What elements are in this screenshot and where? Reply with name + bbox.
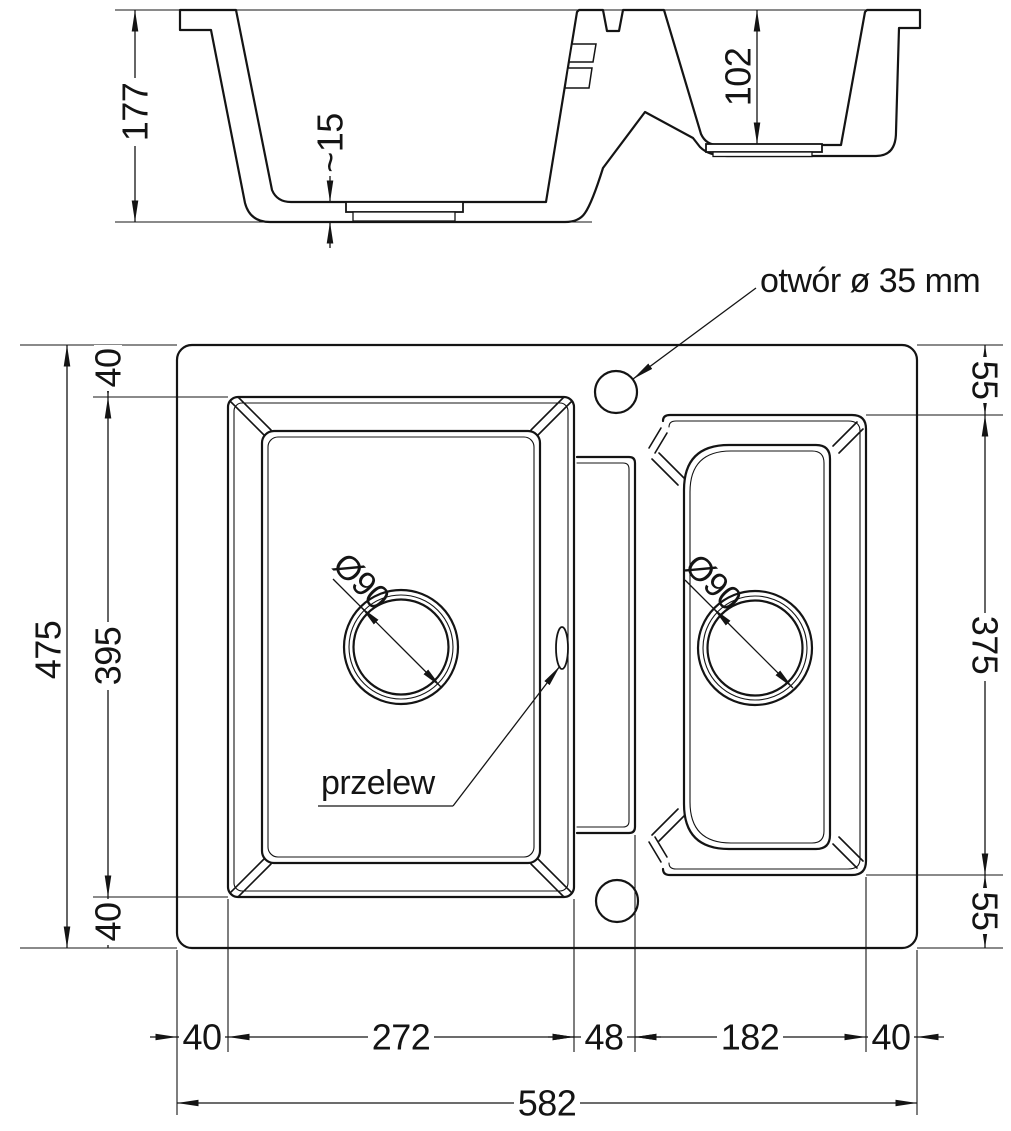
small-bowl-opening — [684, 445, 830, 849]
dim-bowl-opening-height: 395 — [88, 397, 129, 897]
dim-text-177: 177 — [115, 83, 156, 142]
sink-technical-drawing-page: 177 ~15 102 — [0, 0, 1011, 1131]
dim-text-40-right: 40 — [871, 1017, 910, 1058]
section-body-hatched — [180, 10, 920, 222]
dim-text-475: 475 — [28, 621, 69, 680]
dim-margin-left: 40 — [150, 1017, 228, 1058]
dim-text-drain-left: Ø90 — [325, 546, 396, 617]
dim-main-bowl-width: 272 — [228, 1017, 574, 1058]
tap-hole-top — [595, 371, 637, 413]
divider-steps — [577, 457, 635, 833]
dim-text-40-left: 40 — [182, 1017, 221, 1058]
dim-text-102: 102 — [718, 48, 759, 107]
dim-overall-width: 582 — [177, 1083, 917, 1124]
dim-text-182: 182 — [721, 1017, 780, 1058]
dim-text-272: 272 — [372, 1017, 431, 1058]
cross-section-view: 177 ~15 102 — [115, 10, 921, 248]
small-bowl — [649, 415, 866, 875]
small-bowl-drain-recess — [713, 152, 812, 157]
dim-right-offset-bottom: 55 — [965, 875, 1006, 948]
dim-text-375: 375 — [965, 616, 1006, 675]
dim-section-depth: 177 — [115, 10, 156, 222]
dim-text-48: 48 — [584, 1017, 623, 1058]
dim-text-582: 582 — [518, 1083, 577, 1124]
main-bowl-drain-plate — [346, 202, 463, 212]
dim-text-15: ~15 — [310, 113, 351, 173]
dim-text-395: 395 — [88, 627, 129, 686]
dim-small-bowl-depth: 102 — [718, 10, 759, 144]
overflow-slot — [556, 627, 568, 669]
dim-small-bowl-width: 182 — [635, 1017, 866, 1058]
dim-text-40-bottom-left: 40 — [88, 902, 129, 941]
dim-overall-height: 475 — [28, 345, 69, 948]
dim-text-55-top-right: 55 — [965, 360, 1006, 399]
dim-text-55-bottom-right: 55 — [965, 891, 1006, 930]
dim-margin-right: 40 — [866, 1017, 944, 1058]
dim-small-drain-diameter: Ø90 — [677, 547, 793, 688]
tap-hole-note: otwór ø 35 mm — [633, 262, 980, 379]
dim-text-drain-right: Ø90 — [677, 547, 748, 618]
small-bowl-opening-inner-line — [690, 451, 824, 843]
sink-technical-drawing: 177 ~15 102 — [0, 0, 1011, 1131]
small-bowl-rim-outer — [663, 415, 866, 875]
dim-text-40-top-left: 40 — [88, 348, 129, 387]
overflow-note: przelew — [318, 666, 560, 806]
dim-left-offset-bottom: 40 — [88, 897, 129, 948]
small-bowl-drain-plate — [706, 144, 822, 152]
dim-right-offset-top: 55 — [965, 345, 1006, 415]
plan-view: Ø90 Ø90 otwór ø 35 mm przelew 475 40 — [20, 262, 1006, 1124]
dim-small-bowl-height: 375 — [965, 415, 1006, 875]
main-bowl-drain-recess — [353, 212, 455, 221]
dim-left-offset-top: 40 — [88, 345, 129, 397]
dim-bottom-thickness: ~15 — [310, 113, 351, 248]
tap-hole-bottom — [596, 880, 638, 922]
overflow-note-text: przelew — [321, 764, 436, 802]
dim-main-drain-diameter: Ø90 — [325, 546, 441, 687]
tap-hole-note-text: otwór ø 35 mm — [760, 262, 980, 300]
